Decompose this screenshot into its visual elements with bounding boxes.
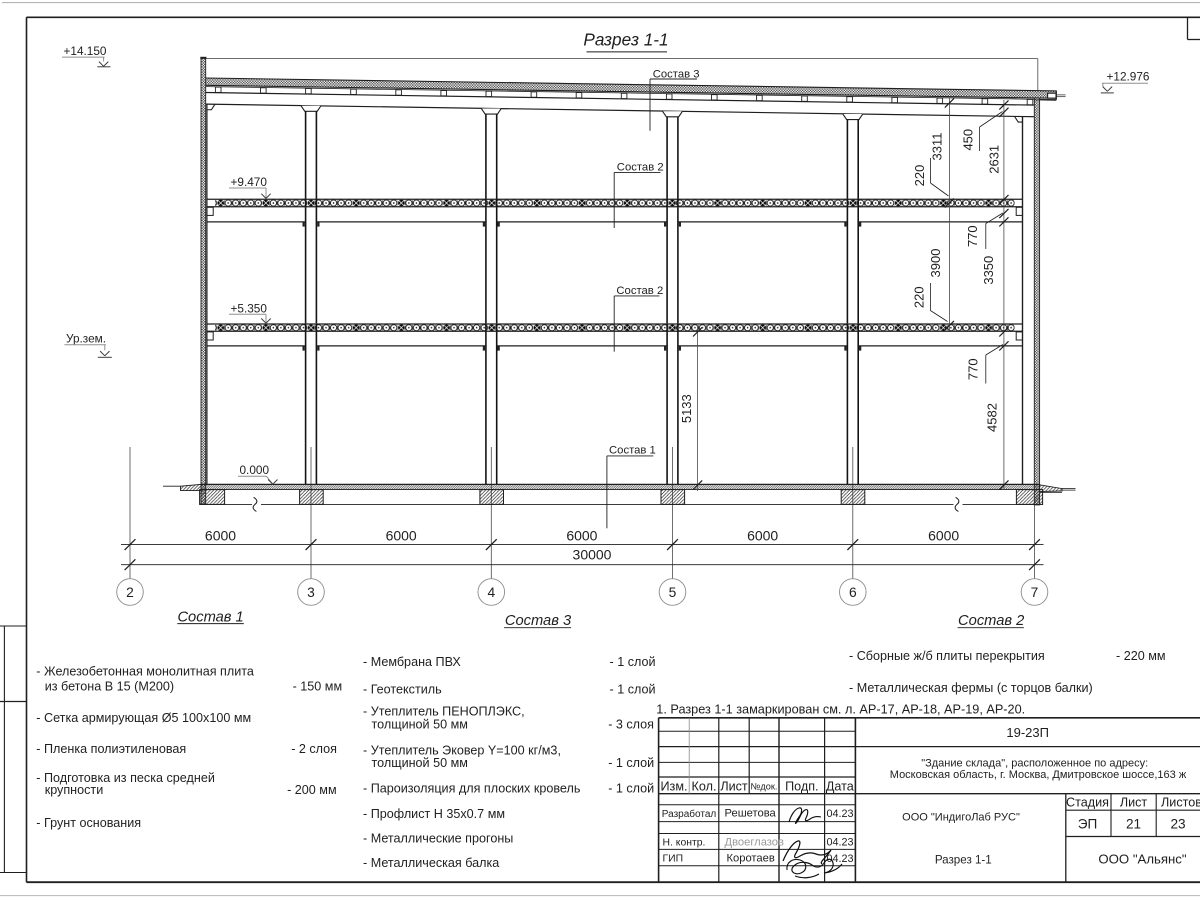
svg-text:Ур.зем.: Ур.зем. [66,331,106,345]
svg-text:3311: 3311 [930,133,945,161]
svg-text:- 1 слой: - 1 слой [608,781,654,795]
svg-text:2: 2 [126,585,134,600]
svg-text:ООО "ИндигоЛаб РУС": ООО "ИндигоЛаб РУС" [902,812,1020,824]
svg-text:6000: 6000 [386,527,417,543]
svg-text:Дата: Дата [826,779,854,793]
svg-text:Разрез 1-1: Разрез 1-1 [935,853,992,866]
svg-text:30000: 30000 [573,547,612,563]
svg-text:Лист: Лист [1120,795,1148,809]
svg-text:+5.350: +5.350 [231,301,268,315]
svg-text:из бетона В 15 (М200): из бетона В 15 (М200) [45,679,174,693]
svg-text:- Железобетонная монолитная п: - Железобетонная монолитная плита [36,664,254,678]
svg-text:- Сетка армирующая Ø5 100x100: - Сетка армирующая Ø5 100x100 мм [36,711,251,725]
svg-text:21: 21 [1126,816,1141,831]
svg-text:- Металлическая фермы (с торцо: - Металлическая фермы (с торцов балки) [849,681,1093,695]
svg-text:№док.: №док. [751,782,778,792]
svg-text:Изм.: Изм. [661,779,688,793]
svg-text:Двоеглазов: Двоеглазов [725,836,785,848]
svg-text:Разрез 1-1: Разрез 1-1 [583,30,668,50]
svg-text:Решетова: Решетова [725,808,777,820]
svg-text:04.23: 04.23 [826,808,853,820]
svg-text:ООО "Альянс": ООО "Альянс" [1098,852,1186,867]
svg-text:Листов: Листов [1161,795,1200,809]
svg-text:- Мембрана ПВХ: - Мембрана ПВХ [363,655,461,669]
svg-text:220: 220 [912,286,927,308]
svg-text:толщиной 50 мм: толщиной 50 мм [372,756,468,770]
svg-text:Стадия: Стадия [1066,795,1109,809]
svg-text:23: 23 [1170,816,1185,831]
svg-text:4582: 4582 [985,403,1000,432]
svg-text:3350: 3350 [981,256,996,285]
svg-text:- 150 мм: - 150 мм [293,679,343,693]
svg-text:Московская область, г. Москва,: Московская область, г. Москва, Дмитровск… [890,769,1187,781]
svg-text:Состав 2: Состав 2 [958,613,1024,629]
svg-text:4: 4 [487,585,495,600]
svg-text:Коротаев: Коротаев [727,853,775,865]
svg-text:450: 450 [961,129,976,151]
svg-text:7: 7 [1031,585,1039,600]
svg-text:- 1 слой: - 1 слой [608,756,654,770]
svg-text:04.23: 04.23 [826,837,853,849]
svg-text:Подп.: Подп. [785,779,818,793]
svg-text:- 220 мм: - 220 мм [1116,649,1166,663]
svg-text:2631: 2631 [987,145,1002,174]
svg-text:0.000: 0.000 [240,463,270,477]
svg-text:толщиной 50 мм: толщиной 50 мм [372,718,468,732]
svg-text:- Пароизоляция для плоских кро: - Пароизоляция для плоских кровель [363,781,581,795]
svg-text:Разработал: Разработал [662,808,717,820]
svg-text:- 1 слой: - 1 слой [610,683,656,697]
svg-text:"Здание склада", расположенное: "Здание склада", расположенное по адресу… [921,757,1148,769]
svg-text:+9.470: +9.470 [231,175,268,189]
svg-text:+14.150: +14.150 [64,44,107,58]
svg-text:- Геотекстиль: - Геотекстиль [363,683,442,697]
svg-text:- Сборные ж/б плиты перекрытия: - Сборные ж/б плиты перекрытия [849,649,1045,663]
svg-text:- Утеплитель ПЕНОПЛЭКС,: - Утеплитель ПЕНОПЛЭКС, [363,705,525,719]
svg-text:1. Разрез 1-1 замаркирован см.: 1. Разрез 1-1 замаркирован см. л. АР-17,… [656,703,1025,717]
svg-text:Состав 1: Состав 1 [609,445,656,457]
svg-text:ЭП: ЭП [1078,816,1098,831]
svg-text:5: 5 [669,585,677,600]
svg-text:3900: 3900 [928,249,943,278]
svg-text:6000: 6000 [205,527,236,543]
svg-text:- Грунт основания: - Грунт основания [36,816,141,830]
svg-text:220: 220 [912,165,927,187]
svg-text:+12.976: +12.976 [1107,69,1150,83]
svg-text:- 3 слоя: - 3 слоя [608,718,654,732]
svg-text:- 1 слой: - 1 слой [610,655,656,669]
svg-text:- Профлист Н 35х0.7 мм: - Профлист Н 35х0.7 мм [363,807,505,821]
svg-text:Состав 1: Состав 1 [177,610,243,626]
svg-text:5133: 5133 [679,394,694,423]
svg-text:3: 3 [307,585,315,600]
svg-text:Состав 2: Состав 2 [616,285,663,297]
svg-text:Н. контр.: Н. контр. [663,837,706,848]
svg-text:ГИП: ГИП [663,854,684,865]
svg-text:Состав 2: Состав 2 [617,161,664,173]
svg-text:- 200 мм: - 200 мм [287,783,337,797]
svg-text:6000: 6000 [928,527,959,543]
svg-text:6: 6 [849,585,857,600]
svg-text:Кол.: Кол. [692,779,717,793]
svg-text:770: 770 [966,358,981,380]
svg-text:Лист: Лист [720,779,748,793]
svg-text:770: 770 [965,225,980,247]
svg-text:- Металлические прогоны: - Металлические прогоны [363,832,513,846]
svg-text:- Металлическая балка: - Металлическая балка [363,856,499,870]
svg-text:6000: 6000 [747,527,778,543]
svg-text:- Пленка полиэтиленовая: - Пленка полиэтиленовая [36,742,186,756]
svg-text:Состав 3: Состав 3 [505,613,572,629]
svg-text:крупности: крупности [45,783,104,797]
svg-text:19-23П: 19-23П [1006,725,1049,740]
svg-text:- 2 слоя: - 2 слоя [291,742,337,756]
svg-text:6000: 6000 [566,527,597,543]
